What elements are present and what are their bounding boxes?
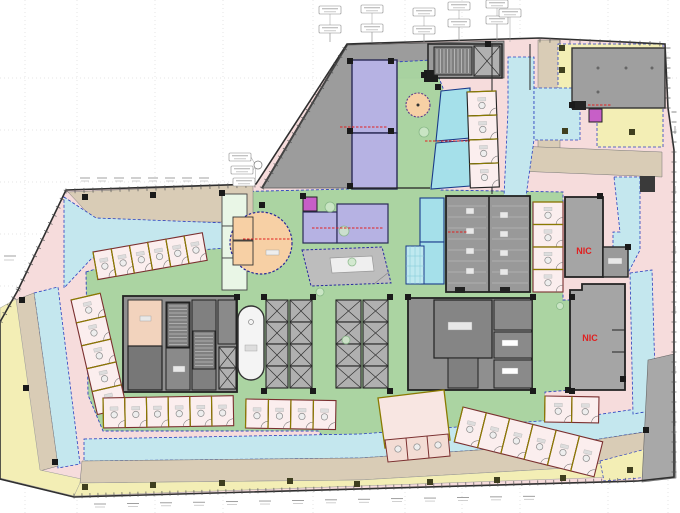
- tree-circle: [342, 336, 350, 344]
- room-tag-chip: [544, 230, 552, 234]
- column-marker: [421, 72, 427, 78]
- room-row: [103, 396, 234, 428]
- fixture: [466, 268, 474, 274]
- column-marker: [52, 459, 58, 465]
- furniture-table: [545, 235, 551, 241]
- room-edge-olive: [146, 397, 147, 427]
- room-tag-chip: [554, 403, 562, 407]
- column-marker: [387, 388, 393, 394]
- tree-circle: [325, 202, 335, 212]
- floor-plan-drawing: NIC NIC: [0, 0, 680, 513]
- column-marker: [597, 193, 603, 199]
- room-edge-olive: [313, 400, 314, 429]
- furniture-table: [154, 411, 161, 418]
- column-marker: [565, 387, 571, 393]
- tree-circle: [348, 258, 356, 266]
- room-edge-olive: [190, 396, 191, 426]
- column-marker: [562, 128, 568, 134]
- room-edge-olive: [125, 398, 126, 428]
- zone-nic-a: [565, 197, 603, 277]
- room-tag-chip: [298, 408, 306, 412]
- room-row: [245, 399, 335, 430]
- floor-plan-canvas: NIC NIC: [0, 0, 680, 513]
- furniture-table: [479, 102, 486, 109]
- room-row: [467, 91, 499, 188]
- column-marker: [347, 183, 353, 189]
- room-tag-chip: [544, 275, 552, 279]
- column-marker: [494, 477, 500, 483]
- column-marker: [82, 194, 88, 200]
- room-edge-olive: [211, 396, 212, 426]
- room-magenta-closet: [303, 197, 317, 211]
- furniture-table: [321, 414, 328, 421]
- column-marker: [261, 294, 267, 300]
- zone-gray-topright: [572, 48, 665, 110]
- furniture-table: [198, 410, 205, 417]
- room-magenta-right: [589, 109, 602, 122]
- column-marker: [219, 190, 225, 196]
- stair-run: [434, 47, 472, 75]
- room-tag-chip: [253, 408, 261, 412]
- column-marker: [310, 294, 316, 300]
- furniture-table: [555, 408, 562, 415]
- column-marker: [82, 484, 88, 490]
- room-tag-chip: [544, 207, 552, 211]
- shaft-dark-box: [640, 176, 655, 192]
- nic-label-2: NIC: [582, 333, 598, 343]
- column-marker: [234, 294, 240, 300]
- room-storage: [218, 300, 236, 344]
- callout-tag: [413, 26, 435, 34]
- callout-tag: [486, 0, 508, 8]
- room-tag-chip: [581, 404, 589, 408]
- callout-tag: [233, 178, 255, 186]
- room-edge-olive: [245, 399, 246, 428]
- room-it-closet: [603, 247, 628, 277]
- column-marker: [150, 482, 156, 488]
- fixture: [466, 248, 474, 254]
- callout-tag: [448, 2, 470, 10]
- column-marker: [347, 128, 353, 134]
- room-row: [533, 202, 563, 292]
- suite-trapezoid: [378, 390, 450, 462]
- room-tag-chip: [479, 145, 487, 149]
- feature-oval-room: [238, 306, 264, 380]
- furniture-table: [545, 212, 551, 218]
- room-tag-chip: [478, 97, 486, 101]
- tree-circle: [419, 127, 429, 137]
- tree-circle: [316, 288, 324, 296]
- furniture-table: [276, 413, 283, 420]
- callout-tag: [319, 6, 341, 14]
- furniture-table: [219, 410, 226, 417]
- room-tag-chip: [544, 252, 552, 256]
- column-marker: [388, 58, 394, 64]
- furniture-table: [481, 174, 488, 181]
- furniture-table: [254, 412, 261, 419]
- feature-monumental-stair: [302, 247, 391, 286]
- callout-tag: [361, 5, 383, 13]
- room-tag-chip: [321, 409, 329, 413]
- column-marker: [625, 244, 631, 250]
- column-marker: [261, 388, 267, 394]
- column-marker: [287, 478, 293, 484]
- column-marker: [259, 202, 265, 208]
- column-marker: [354, 481, 360, 487]
- column-marker: [150, 192, 156, 198]
- spiral-stair-center: [417, 104, 420, 107]
- column-marker: [485, 41, 491, 47]
- column-marker: [427, 479, 433, 485]
- column-marker: [387, 294, 393, 300]
- furniture-table: [480, 126, 487, 133]
- fixture: [466, 228, 474, 234]
- callout-tag: [499, 9, 521, 17]
- fixture: [500, 269, 508, 275]
- edge-gray-right: [642, 354, 676, 482]
- room-electrical: [128, 346, 162, 390]
- column-marker: [23, 385, 29, 391]
- column-marker: [569, 294, 575, 300]
- core-restrooms: [446, 196, 530, 293]
- callout-tag: [361, 24, 383, 32]
- room-tag-chip: [197, 405, 205, 409]
- room-tag-chip: [110, 407, 118, 411]
- column-marker: [300, 193, 306, 199]
- furniture-table: [582, 408, 589, 415]
- room-electrical-2: [494, 300, 532, 330]
- callout-tag: [413, 8, 435, 16]
- room-tag-chip: [218, 405, 226, 409]
- room-tag-chip: [175, 406, 183, 410]
- column-marker: [388, 128, 394, 134]
- room-edge-olive: [268, 399, 269, 428]
- suite-purple-upper: [352, 60, 397, 189]
- tree-circle: [557, 303, 564, 310]
- stair-run: [193, 331, 215, 369]
- column-marker: [19, 297, 25, 303]
- column-marker: [219, 480, 225, 486]
- callout-tag: [229, 153, 251, 161]
- furniture-table: [176, 410, 183, 417]
- nic-label-1: NIC: [576, 246, 592, 256]
- column-marker: [643, 427, 649, 433]
- room-edge-olive: [290, 400, 291, 429]
- column-marker: [530, 294, 536, 300]
- column-marker: [620, 376, 626, 382]
- room-row: [545, 396, 599, 423]
- column-marker: [530, 388, 536, 394]
- room-cyan-tile: [406, 246, 424, 284]
- fixture: [466, 208, 474, 214]
- callout-tag: [231, 166, 253, 174]
- callout-tag: [448, 19, 470, 27]
- callout-bubble: [254, 161, 262, 169]
- furniture-table: [111, 412, 118, 419]
- column-marker: [569, 102, 575, 108]
- core-right: [408, 298, 532, 390]
- fixture: [500, 231, 508, 237]
- room-tag-chip: [480, 169, 488, 173]
- column-marker: [559, 45, 565, 51]
- column-marker: [405, 294, 411, 300]
- feature-round-room: [230, 212, 292, 274]
- room-edge-olive: [103, 398, 104, 428]
- furniture-table: [133, 411, 140, 418]
- room-tag-chip: [132, 406, 140, 410]
- furniture-table: [480, 150, 487, 157]
- fixture: [500, 250, 508, 256]
- column-marker: [560, 475, 566, 481]
- column-marker: [347, 58, 353, 64]
- furniture-table: [545, 280, 551, 286]
- room-tag-chip: [479, 121, 487, 125]
- room-edge-olive: [168, 397, 169, 427]
- column-marker: [559, 67, 565, 73]
- room-tag-chip: [153, 406, 161, 410]
- column-marker: [310, 388, 316, 394]
- column-marker: [629, 129, 635, 135]
- callout-tag: [319, 25, 341, 33]
- room-tag-chip: [276, 408, 284, 412]
- furniture-table: [545, 257, 551, 263]
- room-peach-elec: [128, 300, 162, 346]
- column-marker: [627, 467, 633, 473]
- furniture-table: [299, 413, 306, 420]
- fixture: [500, 212, 508, 218]
- column-marker: [435, 84, 441, 90]
